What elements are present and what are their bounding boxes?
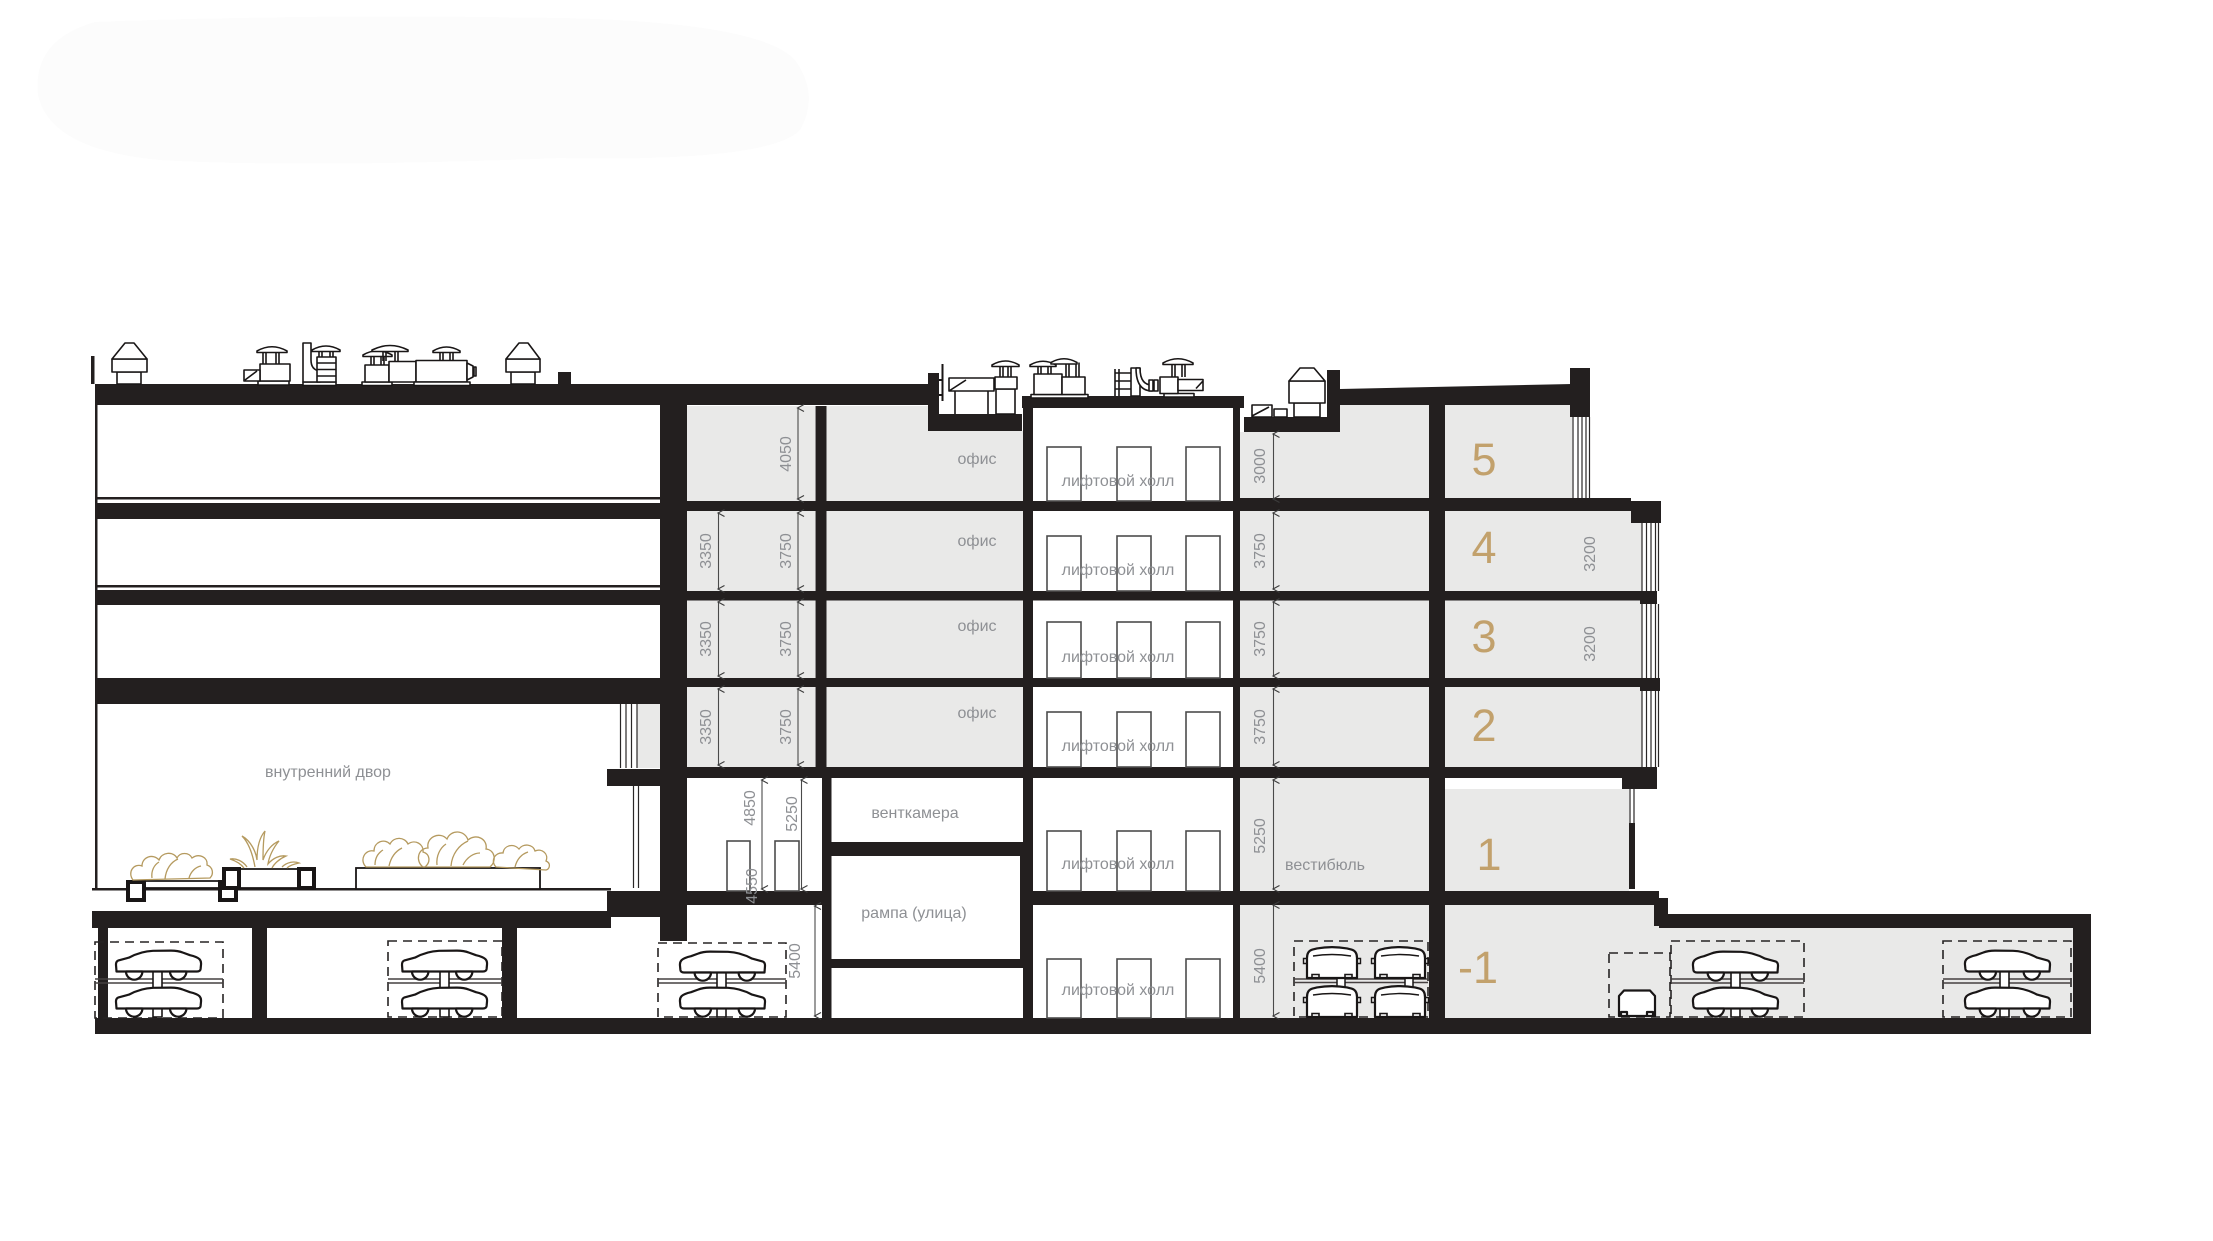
svg-text:3350: 3350 <box>698 533 715 569</box>
svg-text:4: 4 <box>1471 522 1496 573</box>
svg-text:4050: 4050 <box>778 436 795 472</box>
svg-text:рампа (улица): рампа (улица) <box>861 905 966 922</box>
svg-text:лифтовой холл: лифтовой холл <box>1062 738 1175 755</box>
svg-text:3200: 3200 <box>1582 626 1599 662</box>
svg-text:лифтовой холл: лифтовой холл <box>1062 649 1175 666</box>
svg-text:5: 5 <box>1471 434 1496 485</box>
svg-text:офис: офис <box>958 533 997 550</box>
svg-text:3000: 3000 <box>1252 448 1269 484</box>
svg-text:офис: офис <box>958 705 997 722</box>
svg-text:3350: 3350 <box>698 621 715 657</box>
svg-text:4850: 4850 <box>742 790 759 826</box>
svg-text:вестибюль: вестибюль <box>1285 857 1365 874</box>
svg-text:3750: 3750 <box>1252 709 1269 745</box>
svg-text:5400: 5400 <box>787 943 804 979</box>
svg-text:лифтовой холл: лифтовой холл <box>1062 982 1175 999</box>
svg-text:3750: 3750 <box>1252 621 1269 657</box>
svg-text:5400: 5400 <box>1252 948 1269 984</box>
svg-text:3200: 3200 <box>1582 536 1599 572</box>
svg-text:3750: 3750 <box>1252 533 1269 569</box>
svg-text:3750: 3750 <box>778 621 795 657</box>
svg-text:5250: 5250 <box>784 796 801 832</box>
svg-text:офис: офис <box>958 451 997 468</box>
svg-text:лифтовой холл: лифтовой холл <box>1062 562 1175 579</box>
svg-text:лифтовой холл: лифтовой холл <box>1062 856 1175 873</box>
svg-text:3750: 3750 <box>778 709 795 745</box>
svg-text:офис: офис <box>958 618 997 635</box>
svg-text:2: 2 <box>1471 700 1496 751</box>
svg-text:венткамера: венткамера <box>871 805 958 822</box>
svg-text:3: 3 <box>1471 611 1496 662</box>
svg-text:3750: 3750 <box>778 533 795 569</box>
svg-text:внутренний двор: внутренний двор <box>265 764 391 781</box>
svg-text:лифтовой холл: лифтовой холл <box>1062 473 1175 490</box>
svg-text:1: 1 <box>1476 829 1501 880</box>
svg-text:3350: 3350 <box>698 709 715 745</box>
svg-text:5250: 5250 <box>1252 818 1269 854</box>
svg-text:4550: 4550 <box>744 868 761 904</box>
svg-text:-1: -1 <box>1458 942 1498 993</box>
